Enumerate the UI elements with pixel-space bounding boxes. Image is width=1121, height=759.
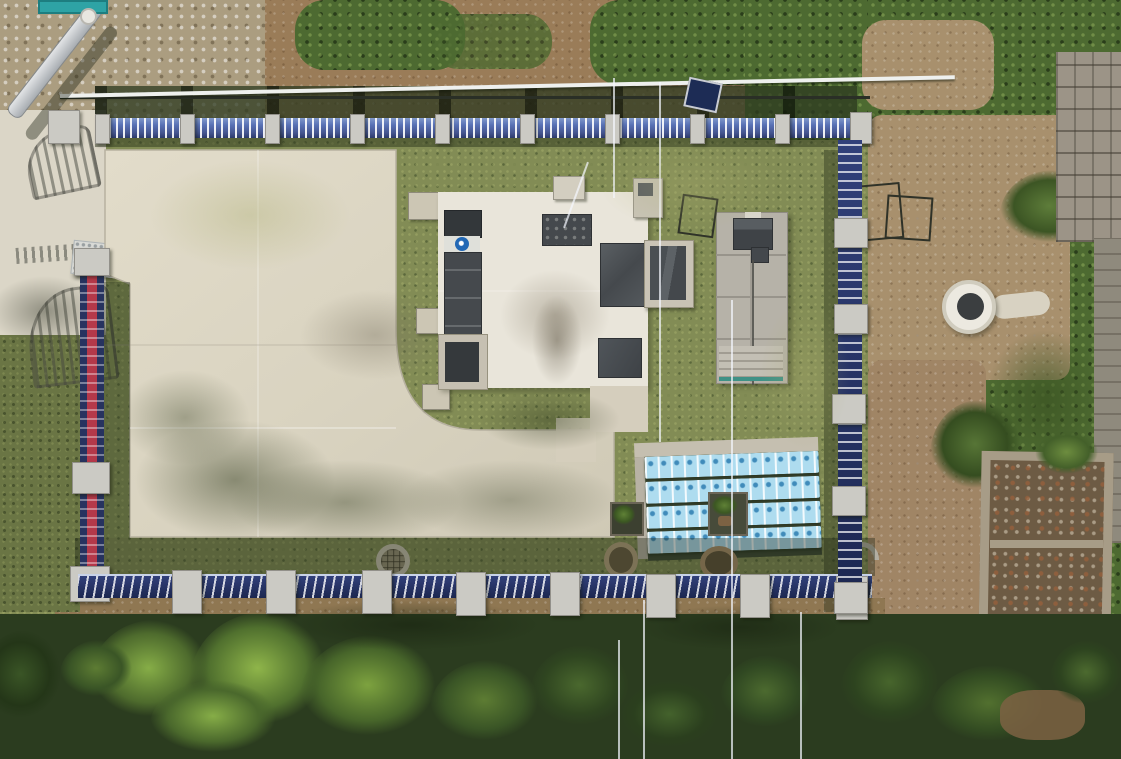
- fence-post: [180, 114, 195, 144]
- fence-post: [95, 114, 110, 144]
- planter-shrub: [612, 504, 638, 530]
- white-ball-cap: [80, 8, 97, 25]
- dry-grass-patch: [600, 140, 780, 230]
- fence-post: [456, 572, 486, 616]
- pit-opening: [445, 342, 479, 382]
- planter-soil: [718, 516, 732, 526]
- utility-wire: [659, 82, 661, 442]
- gate-pillar: [74, 248, 110, 276]
- metal-frame-outside: [885, 194, 934, 241]
- fence-post: [646, 574, 676, 618]
- figure-shadow: [532, 295, 582, 385]
- tree-shadow-on-pad: [400, 460, 620, 540]
- fence-post: [740, 574, 770, 618]
- fence-post: [834, 582, 868, 614]
- rooftop-equipment-box: [733, 218, 773, 250]
- fence-post: [266, 570, 296, 614]
- teal-playground-structure: [38, 0, 108, 14]
- fence-post: [775, 114, 790, 144]
- fence-post: [435, 114, 450, 144]
- utility-wire: [731, 300, 733, 759]
- left-fence: [80, 270, 104, 600]
- blue-logo-circle: [455, 237, 469, 251]
- fence-slats: [95, 118, 870, 138]
- channel-head-box: [444, 210, 482, 238]
- fence-post: [350, 114, 365, 144]
- utility-wire: [643, 600, 645, 759]
- tree-shadow-on-pad: [120, 370, 250, 465]
- dark-roof-panel: [600, 243, 646, 307]
- fence-slats: [80, 270, 104, 600]
- dark-roof-panel: [598, 338, 642, 378]
- fence-post: [72, 462, 110, 494]
- gate-pillar: [48, 110, 80, 144]
- stain-on-pad: [300, 290, 450, 380]
- fence-shadow: [95, 138, 870, 147]
- fence-post: [362, 570, 392, 614]
- worn-grass-shadow: [480, 390, 620, 450]
- top-fence: [95, 118, 870, 138]
- dry-grass-patch: [760, 300, 850, 450]
- fence-shadow: [104, 282, 130, 538]
- fence-post: [834, 218, 868, 248]
- aerial-photo-scene: [0, 0, 1121, 759]
- dry-grass-patch: [150, 160, 350, 270]
- utility-wire: [800, 612, 802, 759]
- wire-mesh-fence-line: [60, 96, 870, 99]
- fence-post: [550, 572, 580, 616]
- fence-post: [520, 114, 535, 144]
- fence-post: [832, 486, 866, 516]
- freestanding-dark-panel: [650, 246, 686, 300]
- utility-wire: [618, 640, 620, 759]
- fence-post: [265, 114, 280, 144]
- fence-post: [172, 570, 202, 614]
